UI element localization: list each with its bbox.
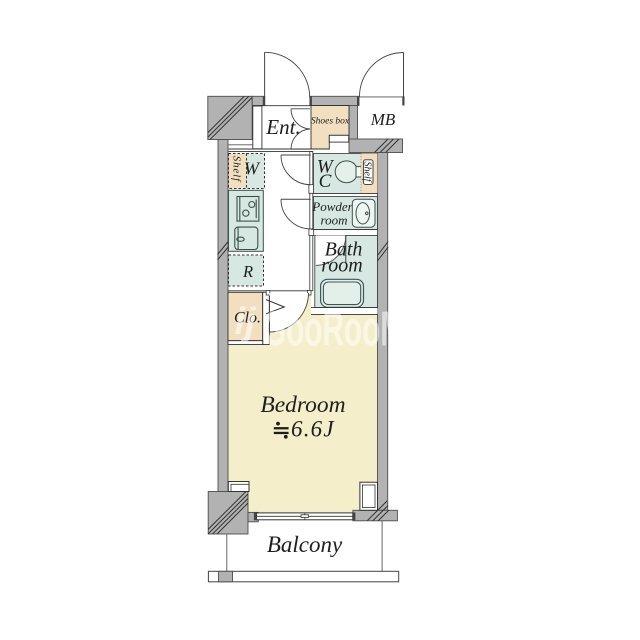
svg-text:Shelf: Shelf bbox=[362, 162, 373, 183]
svg-text:MB: MB bbox=[370, 110, 396, 129]
svg-text:W: W bbox=[244, 159, 261, 179]
svg-text:Bedroom: Bedroom bbox=[260, 392, 345, 418]
svg-text:Shoes box: Shoes box bbox=[311, 117, 350, 127]
svg-text:R: R bbox=[242, 262, 253, 281]
svg-text:GooRooM: GooRooM bbox=[263, 303, 405, 357]
svg-text:room: room bbox=[321, 212, 348, 227]
svg-text:6.6J: 6.6J bbox=[291, 417, 335, 442]
svg-text:Ent.: Ent. bbox=[265, 115, 300, 139]
svg-text:room: room bbox=[321, 255, 362, 277]
svg-text:ij: ij bbox=[235, 301, 258, 343]
svg-text:C: C bbox=[319, 171, 332, 192]
svg-text:Balcony: Balcony bbox=[267, 532, 343, 557]
svg-text:Shelf: Shelf bbox=[231, 156, 243, 183]
